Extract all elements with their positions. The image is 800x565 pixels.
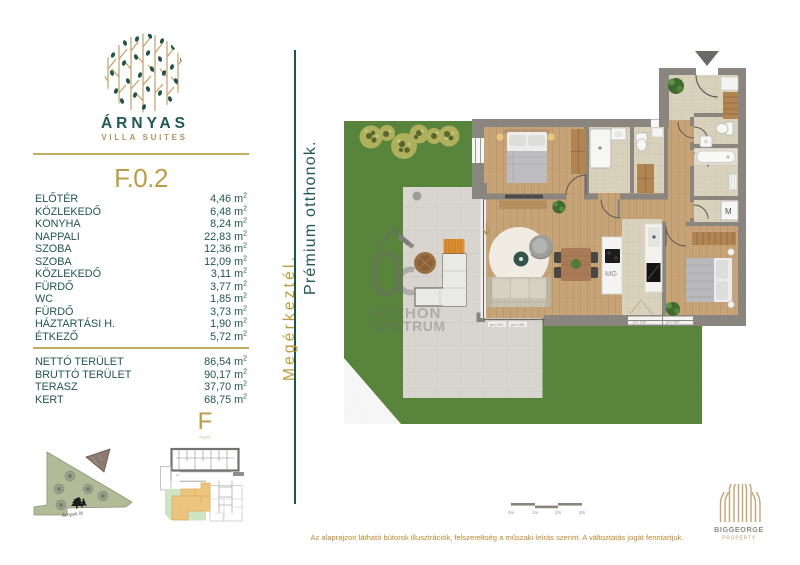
svg-text:2m: 2m <box>555 510 562 515</box>
svg-text:CENTRUM: CENTRUM <box>372 318 446 334</box>
svg-text:pm 190: pm 190 <box>633 320 647 325</box>
svg-text:MG: MG <box>605 269 617 278</box>
svg-text:0m: 0m <box>508 510 515 515</box>
svg-text:M: M <box>725 207 732 216</box>
svg-text:BIGGEORGE: BIGGEORGE <box>714 525 764 534</box>
svg-text:3m: 3m <box>579 510 586 515</box>
svg-text:pm 290: pm 290 <box>666 320 680 325</box>
svg-text:1m: 1m <box>532 510 539 515</box>
svg-text:PROPERTY: PROPERTY <box>722 536 756 542</box>
svg-text:pm 100: pm 100 <box>511 322 525 327</box>
svg-text:pm 100: pm 100 <box>490 322 504 327</box>
